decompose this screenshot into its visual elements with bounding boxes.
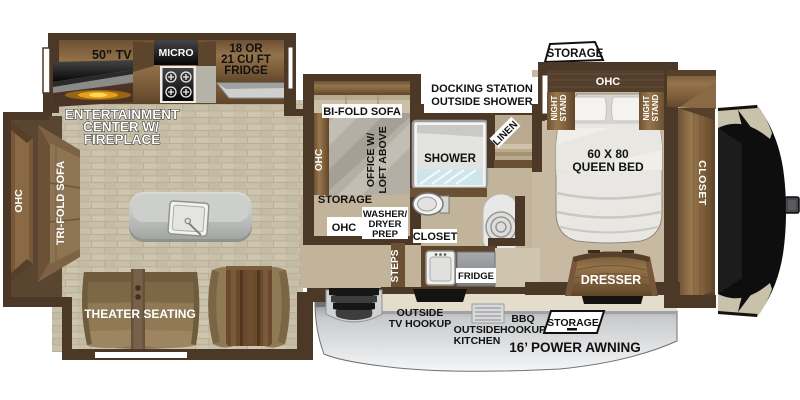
svg-text:TRI-FOLD SOFA: TRI-FOLD SOFA xyxy=(55,161,67,245)
svg-text:NIGHT: NIGHT xyxy=(550,95,559,120)
svg-text:CLOSET: CLOSET xyxy=(696,160,708,206)
svg-text:OHC: OHC xyxy=(314,149,325,171)
svg-text:STORAGE: STORAGE xyxy=(547,317,599,329)
svg-text:NIGHT: NIGHT xyxy=(642,95,651,120)
svg-text:OHC: OHC xyxy=(13,189,25,213)
svg-text:QUEEN BED: QUEEN BED xyxy=(572,160,644,174)
svg-text:OFFICE W/: OFFICE W/ xyxy=(365,133,377,187)
svg-text:FRIDGE: FRIDGE xyxy=(224,65,268,77)
svg-text:BI-FOLD SOFA: BI-FOLD SOFA xyxy=(323,106,401,118)
svg-text:STAND: STAND xyxy=(651,94,660,121)
svg-text:STEPS: STEPS xyxy=(390,249,401,282)
svg-text:60 X 80: 60 X 80 xyxy=(587,147,629,161)
svg-text:OHC: OHC xyxy=(596,76,621,88)
svg-text:THEATER SEATING: THEATER SEATING xyxy=(84,307,196,321)
svg-text:FRIDGE: FRIDGE xyxy=(458,271,494,282)
svg-text:STORAGE: STORAGE xyxy=(547,48,604,60)
svg-text:STAND: STAND xyxy=(559,94,568,121)
svg-text:16’ POWER AWNING: 16’ POWER AWNING xyxy=(509,340,641,355)
svg-text:CLOSET: CLOSET xyxy=(413,231,458,243)
svg-text:TV HOOKUP: TV HOOKUP xyxy=(389,318,451,330)
svg-text:DOCKING STATION: DOCKING STATION xyxy=(431,83,533,95)
svg-text:SHOWER: SHOWER xyxy=(424,153,476,165)
svg-text:MICRO: MICRO xyxy=(159,47,194,59)
svg-text:PREP: PREP xyxy=(372,229,399,240)
svg-text:50” TV: 50” TV xyxy=(92,48,132,62)
svg-text:HOOKUP: HOOKUP xyxy=(500,324,546,336)
svg-text:STORAGE: STORAGE xyxy=(318,194,372,206)
svg-text:OHC: OHC xyxy=(332,222,357,234)
svg-text:OUTSIDE SHOWER: OUTSIDE SHOWER xyxy=(431,96,533,108)
svg-text:KITCHEN: KITCHEN xyxy=(454,335,501,347)
svg-text:FIREPLACE: FIREPLACE xyxy=(84,132,161,147)
svg-text:LOFT ABOVE: LOFT ABOVE xyxy=(377,126,389,193)
svg-text:DRESSER: DRESSER xyxy=(581,273,641,287)
